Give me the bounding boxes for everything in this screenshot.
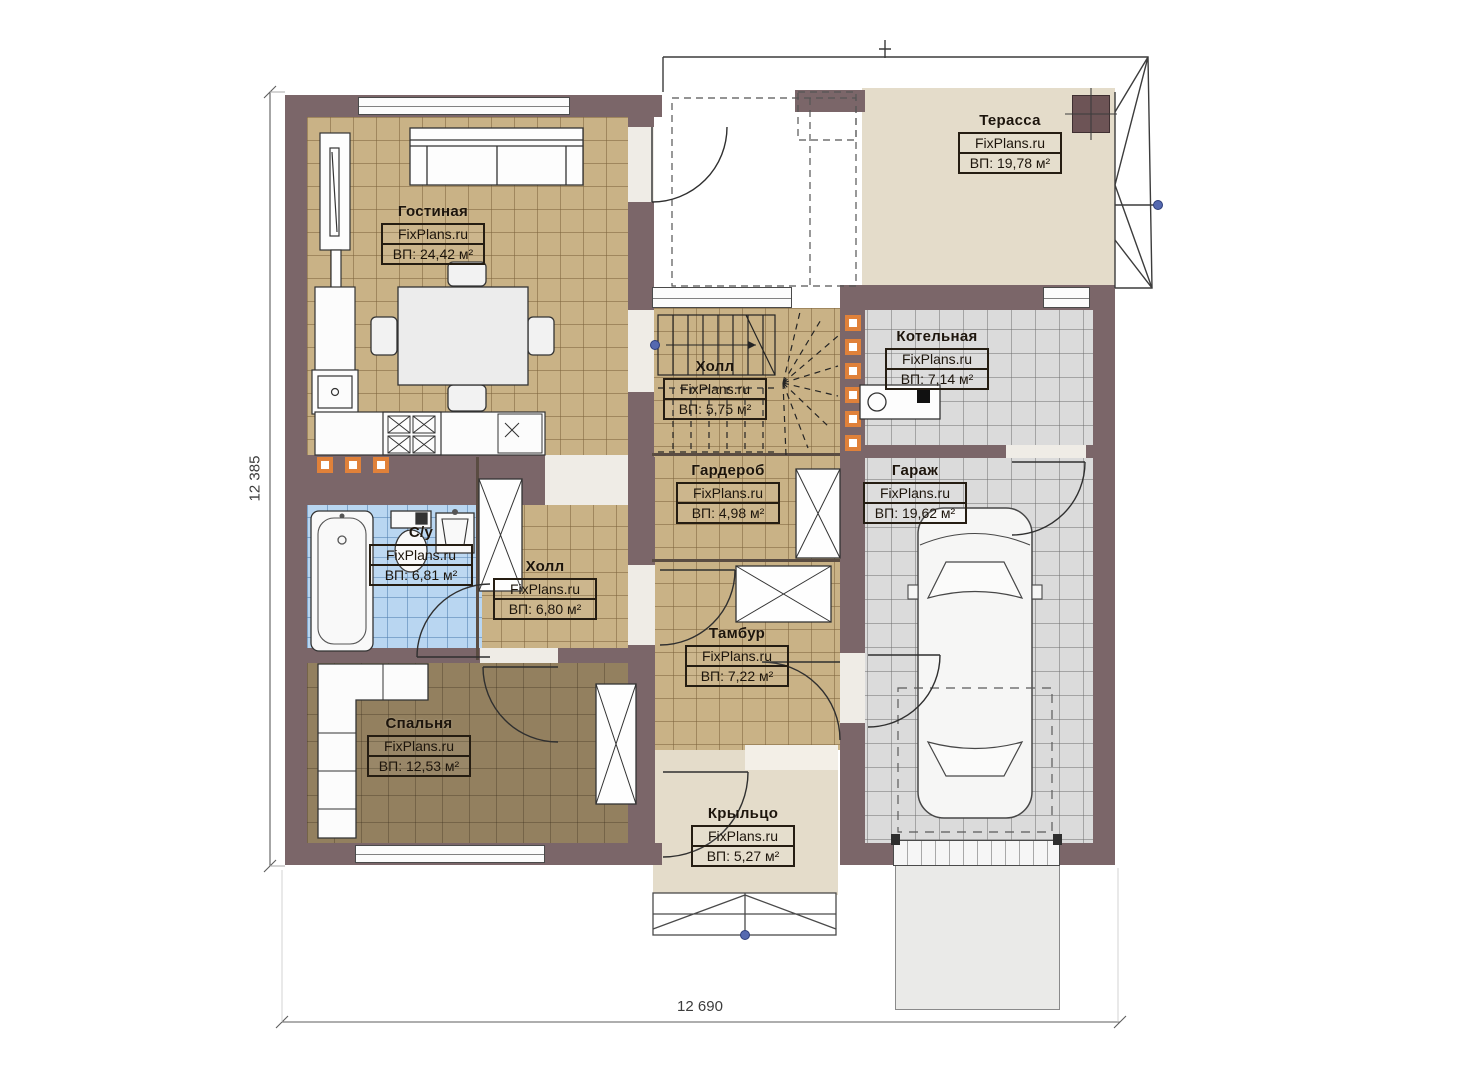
radiator-marker bbox=[373, 457, 389, 473]
watermark-box: FixPlans.ru bbox=[369, 544, 473, 566]
radiator-marker bbox=[317, 457, 333, 473]
area-box: ВП: 5,27 м² bbox=[691, 845, 795, 867]
room-name: С/у bbox=[362, 524, 480, 541]
opening-entry-door bbox=[745, 745, 838, 770]
door-living-terrace bbox=[652, 127, 727, 202]
opening-hall-bedroom bbox=[480, 648, 558, 663]
room-name: Терасса bbox=[945, 112, 1075, 129]
radiator-marker bbox=[345, 457, 361, 473]
terrace-column bbox=[1072, 95, 1110, 133]
area-box: ВП: 19,62 м² bbox=[863, 502, 967, 524]
window-bedroom-bottom bbox=[355, 845, 545, 863]
room-name: Крыльцо bbox=[685, 805, 801, 822]
watermark-box: FixPlans.ru bbox=[958, 132, 1062, 154]
porch-steps bbox=[653, 893, 836, 935]
room-name: Холл bbox=[488, 558, 602, 575]
dimension-width: 12 690 bbox=[660, 998, 740, 1015]
room-name: Холл bbox=[655, 358, 775, 375]
radiator-marker bbox=[845, 363, 861, 379]
radiator-marker bbox=[845, 411, 861, 427]
wall-terrace-stub bbox=[795, 90, 865, 112]
radiator-marker bbox=[845, 387, 861, 403]
area-box: ВП: 7,22 м² bbox=[685, 665, 789, 687]
floor-living-room bbox=[307, 117, 652, 457]
radiator-marker bbox=[845, 315, 861, 331]
room-name: Спальня bbox=[358, 715, 480, 732]
room-name: Гостиная bbox=[368, 203, 498, 220]
room-label-living: Гостиная FixPlans.ru ВП: 24,42 м² bbox=[368, 203, 498, 265]
opening-hall-vestibule bbox=[628, 565, 655, 645]
room-label-wardrobe: Гардероб FixPlans.ru ВП: 4,98 м² bbox=[668, 462, 788, 524]
opening-living-stairhall bbox=[628, 310, 654, 392]
garage-gate bbox=[893, 840, 1060, 866]
watermark-box: FixPlans.ru bbox=[367, 735, 471, 757]
window-boiler-terrace bbox=[1043, 287, 1090, 308]
opening-living-hall bbox=[545, 455, 628, 505]
wall-right bbox=[1093, 285, 1115, 865]
area-box: ВП: 12,53 м² bbox=[367, 755, 471, 777]
wall-bedroom-top bbox=[285, 648, 652, 663]
room-label-bathroom: С/у FixPlans.ru ВП: 6,81 м² bbox=[362, 524, 480, 586]
area-box: ВП: 6,81 м² bbox=[369, 564, 473, 586]
wall-garage-bottom-left bbox=[862, 843, 895, 865]
watermark-box: FixPlans.ru bbox=[676, 482, 780, 504]
room-name: Тамбур bbox=[678, 625, 796, 642]
area-box: ВП: 5,75 м² bbox=[663, 398, 767, 420]
watermark-box: FixPlans.ru bbox=[663, 378, 767, 400]
room-name: Гараж bbox=[855, 462, 975, 479]
watermark-box: FixPlans.ru bbox=[685, 645, 789, 667]
room-label-stair-hall: Холл FixPlans.ru ВП: 5,75 м² bbox=[655, 358, 775, 420]
wall-garage-bottom-right bbox=[1058, 843, 1115, 865]
radiator-marker bbox=[845, 339, 861, 355]
room-label-garage: Гараж FixPlans.ru ВП: 19,62 м² bbox=[855, 462, 975, 524]
roof-overhang-dashed bbox=[672, 92, 856, 286]
room-label-hall: Холл FixPlans.ru ВП: 6,80 м² bbox=[488, 558, 602, 620]
area-box: ВП: 6,80 м² bbox=[493, 598, 597, 620]
watermark-box: FixPlans.ru bbox=[885, 348, 989, 370]
floor-plan-canvas: Гостиная FixPlans.ru ВП: 24,42 м² Терасс… bbox=[0, 0, 1473, 1080]
watermark-box: FixPlans.ru bbox=[381, 223, 485, 245]
room-name: Котельная bbox=[878, 328, 996, 345]
radiator-marker bbox=[845, 435, 861, 451]
area-box: ВП: 4,98 м² bbox=[676, 502, 780, 524]
wall-center-vertical bbox=[628, 457, 655, 865]
opening-vestibule-garage bbox=[840, 653, 865, 723]
opening-boiler-garage bbox=[1006, 445, 1086, 458]
room-label-bedroom: Спальня FixPlans.ru ВП: 12,53 м² bbox=[358, 715, 480, 777]
room-label-terrace: Терасса FixPlans.ru ВП: 19,78 м² bbox=[945, 112, 1075, 174]
watermark-box: FixPlans.ru bbox=[691, 825, 795, 847]
watermark-box: FixPlans.ru bbox=[863, 482, 967, 504]
room-label-boiler: Котельная FixPlans.ru ВП: 7,14 м² bbox=[878, 328, 996, 390]
area-box: ВП: 19,78 м² bbox=[958, 152, 1062, 174]
driveway bbox=[895, 862, 1060, 1010]
room-label-vestibule: Тамбур FixPlans.ru ВП: 7,22 м² bbox=[678, 625, 796, 687]
wall-stairs-wardrobe-divider bbox=[652, 453, 840, 456]
opening-living-terrace bbox=[628, 127, 654, 202]
wall-wardrobe-vestibule-divider bbox=[652, 559, 840, 562]
watermark-box: FixPlans.ru bbox=[493, 578, 597, 600]
window-stairhall-terrace bbox=[652, 287, 792, 308]
area-box: ВП: 7,14 м² bbox=[885, 368, 989, 390]
room-name: Гардероб bbox=[668, 462, 788, 479]
room-label-porch: Крыльцо FixPlans.ru ВП: 5,27 м² bbox=[685, 805, 801, 867]
area-box: ВП: 24,42 м² bbox=[381, 243, 485, 265]
dimension-height: 12 385 bbox=[247, 439, 264, 519]
window-living-top bbox=[358, 97, 570, 115]
